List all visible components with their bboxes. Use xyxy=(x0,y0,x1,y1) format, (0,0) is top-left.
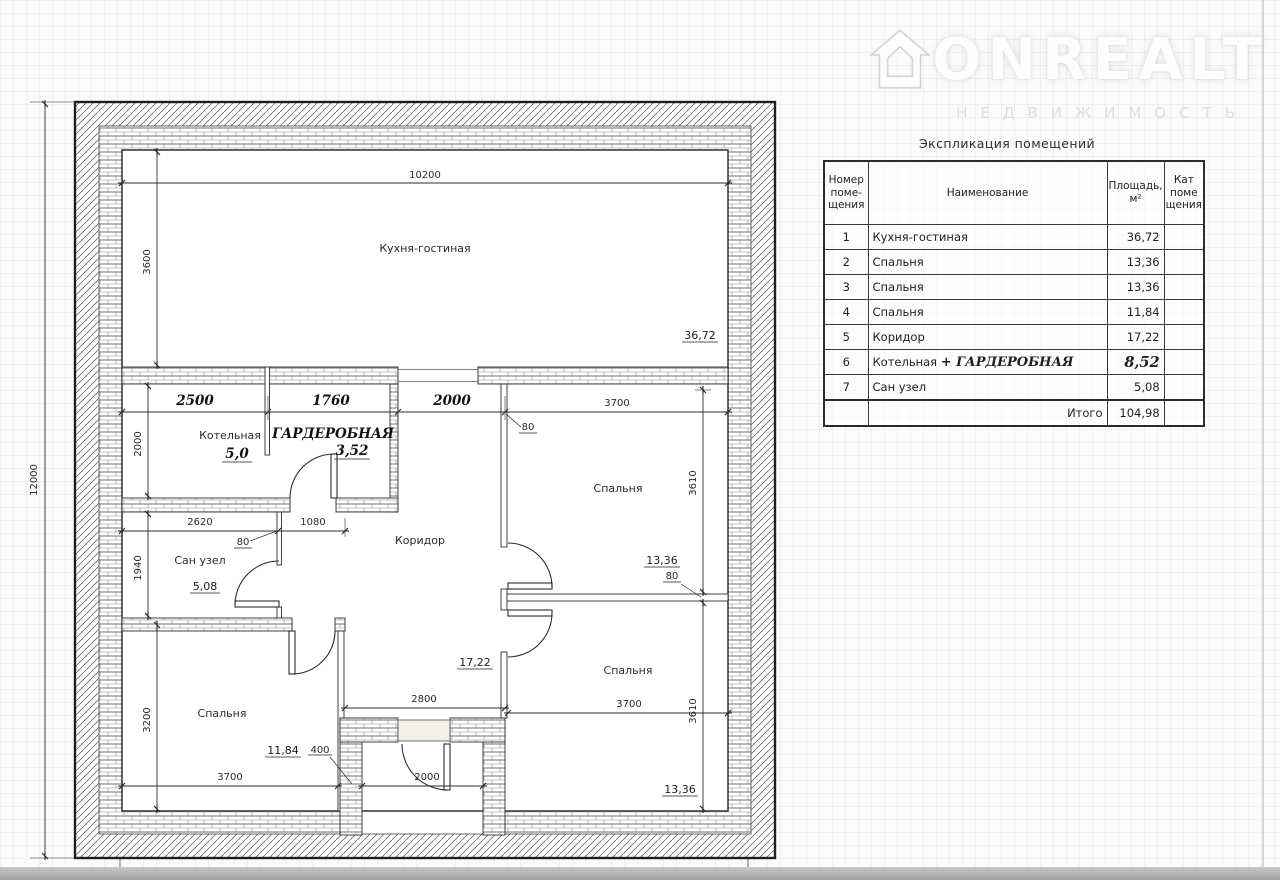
row-category xyxy=(1164,300,1204,325)
watermark-subtitle: НЕДВИЖИМОСТЬ xyxy=(956,104,1268,122)
row-area: 17,22 xyxy=(1107,325,1164,350)
room-label-bedroom-br: Спальня xyxy=(604,664,653,677)
header-category: Кат поме щения xyxy=(1164,161,1204,225)
row-name: Спальня xyxy=(868,300,1107,325)
row-category xyxy=(1164,325,1204,350)
row-category xyxy=(1164,250,1204,275)
row-name: Коридор xyxy=(868,325,1107,350)
dim-entry-width: 2000 xyxy=(414,772,439,783)
room-label-corridor: Коридор xyxy=(395,534,445,547)
watermark: ONREALT НЕДВИЖИМОСТЬ xyxy=(868,18,1268,128)
floor-plan: Кухня-гостиная Котельная ГАРДЕРОБНАЯ Сан… xyxy=(0,0,810,880)
row-name: Спальня xyxy=(868,275,1107,300)
dim-wall-400: 400 xyxy=(310,745,329,756)
row-number: 1 xyxy=(824,225,868,250)
room-label-boiler: Котельная xyxy=(199,429,261,442)
area-corridor: 17,22 xyxy=(459,656,491,669)
table-row: 1 Кухня-гостиная 36,72 xyxy=(824,225,1204,250)
row-name: Спальня xyxy=(868,250,1107,275)
row-name: Котельная + ГАРДЕРОБНАЯ xyxy=(868,350,1107,375)
dim-bedroom-br-height: 3610 xyxy=(688,698,699,723)
area-kitchen: 36,72 xyxy=(684,329,716,342)
row-category xyxy=(1164,275,1204,300)
total-label: Итого xyxy=(868,400,1107,426)
row-area: 13,36 xyxy=(1107,250,1164,275)
area-bedroom-bl: 11,84 xyxy=(267,744,299,757)
row-area: 13,36 xyxy=(1107,275,1164,300)
row-number: 7 xyxy=(824,375,868,401)
explication-title: Экспликация помещений xyxy=(823,136,1191,151)
dim-hall-width: 2000 xyxy=(432,393,471,409)
dim-bedroom-tr-height: 3610 xyxy=(688,470,699,495)
dim-boiler-width: 2500 xyxy=(175,393,214,409)
row-number: 5 xyxy=(824,325,868,350)
row-category xyxy=(1164,225,1204,250)
onrealt-house-icon xyxy=(868,18,932,100)
row-number: 6 xyxy=(824,350,868,375)
row-area: 5,08 xyxy=(1107,375,1164,401)
dim-bedroom-bl-height: 3200 xyxy=(142,707,153,732)
table-row: 2 Спальня 13,36 xyxy=(824,250,1204,275)
header-name: Наименование xyxy=(868,161,1107,225)
dim-bedroom-br-width: 3700 xyxy=(616,699,641,710)
room-label-bathroom: Сан узел xyxy=(174,554,225,567)
total-value: 104,98 xyxy=(1107,400,1164,426)
table-row: 7 Сан узел 5,08 xyxy=(824,375,1204,401)
dim-bath-height: 1940 xyxy=(133,555,144,580)
row-name: Кухня-гостиная xyxy=(868,225,1107,250)
dim-bedroom-bl-width: 3700 xyxy=(217,772,242,783)
dim-kitchen-width: 10200 xyxy=(409,170,441,181)
row-number: 3 xyxy=(824,275,868,300)
room-label-bedroom-tr: Спальня xyxy=(594,482,643,495)
row-name: Сан узел xyxy=(868,375,1107,401)
room-label-bedroom-bl: Спальня xyxy=(198,707,247,720)
row-number: 2 xyxy=(824,250,868,275)
room-label-wardrobe: ГАРДЕРОБНАЯ xyxy=(271,426,395,442)
plan-structure xyxy=(75,102,775,858)
dim-wall-80-bedrooms: 80 xyxy=(666,571,679,582)
dim-boiler-height: 2000 xyxy=(133,431,144,456)
dim-hall-bottom-width: 2800 xyxy=(411,694,436,705)
dim-total-height: 12000 xyxy=(29,464,40,496)
dim-wardrobe-width: 1760 xyxy=(312,393,350,409)
row-category xyxy=(1164,400,1204,426)
scan-edge-right xyxy=(1262,0,1264,880)
table-row: 3 Спальня 13,36 xyxy=(824,275,1204,300)
area-bedroom-br: 13,36 xyxy=(664,783,696,796)
handwritten-addition: + ГАРДЕРОБНАЯ xyxy=(941,355,1074,370)
row-number: 4 xyxy=(824,300,868,325)
dim-pass-width: 1080 xyxy=(300,517,325,528)
area-bathroom: 5,08 xyxy=(193,580,218,593)
table-row: 6 Котельная + ГАРДЕРОБНАЯ 8,52 xyxy=(824,350,1204,375)
explication-table: Номер поме- щения Наименование Площадь, … xyxy=(823,160,1205,427)
total-empty xyxy=(824,400,868,426)
table-header-row: Номер поме- щения Наименование Площадь, … xyxy=(824,161,1204,225)
area-boiler: 5,0 xyxy=(225,446,249,462)
table-row: 5 Коридор 17,22 xyxy=(824,325,1204,350)
table-total-row: Итого 104,98 xyxy=(824,400,1204,426)
row-category xyxy=(1164,350,1204,375)
header-area: Площадь, м² xyxy=(1107,161,1164,225)
dim-wall-80-bath: 80 xyxy=(237,537,250,548)
row-category xyxy=(1164,375,1204,401)
dim-wall-80-hall: 80 xyxy=(522,422,535,433)
room-label-kitchen: Кухня-гостиная xyxy=(379,242,470,255)
area-wardrobe: 3,52 xyxy=(336,443,369,459)
row-area: 8,52 xyxy=(1107,350,1164,375)
dim-bedroom-tr-width: 3700 xyxy=(604,398,629,409)
watermark-brand: ONREALT xyxy=(932,30,1268,88)
dim-bath-width: 2620 xyxy=(187,517,212,528)
row-area: 36,72 xyxy=(1107,225,1164,250)
scan-edge-bottom xyxy=(0,867,1280,880)
header-number: Номер поме- щения xyxy=(824,161,868,225)
area-bedroom-tr: 13,36 xyxy=(646,554,678,567)
dim-kitchen-height: 3600 xyxy=(142,249,153,274)
row-area: 11,84 xyxy=(1107,300,1164,325)
table-row: 4 Спальня 11,84 xyxy=(824,300,1204,325)
